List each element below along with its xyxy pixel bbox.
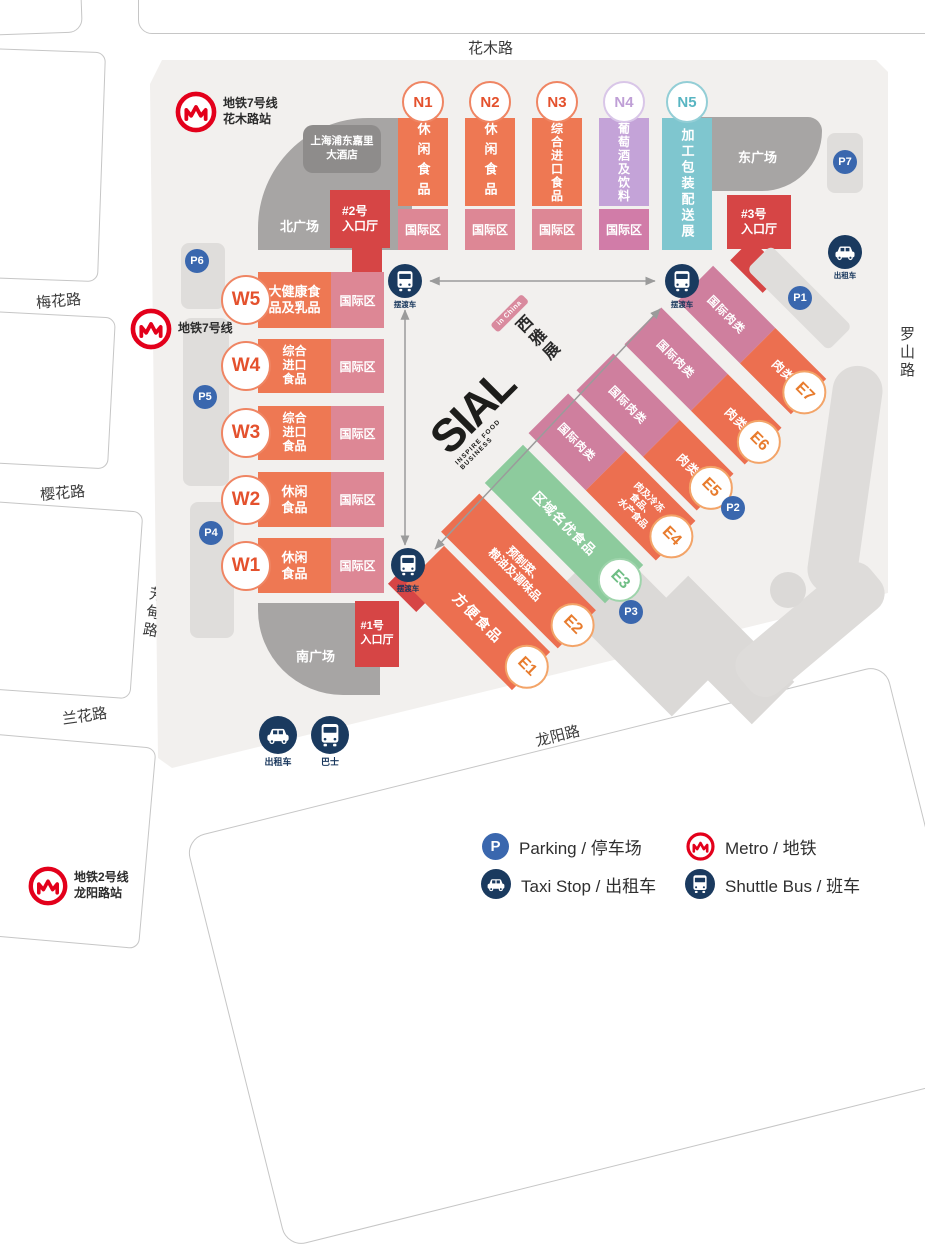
city-block-top (138, 0, 925, 34)
city-block-left-1 (0, 48, 106, 282)
hall-n5-category: 加工包装配送展 (662, 118, 712, 250)
hall-n2-badge: N2 (469, 81, 511, 123)
hall-w2-zone: 国际区 (331, 472, 384, 527)
taxi-icon (259, 716, 297, 754)
taxi-icon (828, 235, 862, 269)
metro-icon (175, 91, 217, 133)
legend-parking-label: Parking / 停车场 (519, 834, 642, 859)
hall-n2: N2 休闲食品 国际区 (465, 118, 515, 250)
hall-w1-badge: W1 (221, 541, 271, 591)
parking-legend-icon: P (482, 833, 509, 860)
shuttle-bus-icon (391, 548, 425, 582)
metro-icon (686, 832, 715, 861)
taxi-stop-label: 出租车 (834, 270, 857, 281)
hall-n1-zone: 国际区 (398, 209, 448, 250)
parking-badge-p4: P4 (199, 521, 223, 545)
hall-w3-badge: W3 (221, 408, 271, 458)
road-label-meihua: 梅花路 (35, 288, 82, 313)
metro-icon (28, 866, 68, 906)
sial-logo-chinese: 西雅展 (508, 312, 565, 369)
entrance-1: #1号 入口厅 (355, 601, 399, 667)
metro-station-line2-longyang: 地铁2号线龙阳路站 (28, 866, 129, 906)
bus-stop-label: 巴士 (321, 755, 339, 768)
bus-icon (311, 716, 349, 754)
hall-w5-zone: 国际区 (331, 272, 384, 328)
metro-station-label: 龙阳路站 (74, 886, 122, 900)
taxi-icon (481, 869, 511, 899)
metro-station-label: 花木路站 (223, 112, 271, 126)
shuttle-stop: 摆渡车 (388, 264, 422, 310)
hall-n1: N1 休闲食品 国际区 (398, 118, 448, 250)
shuttle-stop: 摆渡车 (665, 264, 699, 310)
road-label-yinghua: 樱花路 (39, 480, 86, 505)
hall-w3-zone: 国际区 (331, 406, 384, 460)
hall-n1-category: 休闲食品 (398, 118, 448, 206)
legend-taxi-label: Taxi Stop / 出租车 (521, 872, 656, 897)
shuttle-stop-label: 摆渡车 (671, 299, 694, 310)
legend-shuttle-label: Shuttle Bus / 班车 (725, 872, 860, 897)
shuttle-stop-label: 摆渡车 (397, 583, 420, 594)
hall-n4: N4 葡萄酒及饮料 国际区 (599, 118, 649, 250)
hall-n3-category: 综合进口食品 (532, 118, 582, 206)
legend-metro: Metro / 地铁 (686, 832, 817, 861)
road-label-luoshan: 罗山路 (896, 326, 917, 380)
hall-w1-zone: 国际区 (331, 538, 384, 593)
taxi-stop-label: 出租车 (264, 755, 291, 768)
parking-badge-p5: P5 (193, 385, 217, 409)
metro-icon (130, 308, 172, 350)
metro-station-line7-huamu: 地铁7号线花木路站 (175, 91, 278, 133)
parking-badge-p2: P2 (721, 496, 745, 520)
taxi-stop: 出租车 (828, 235, 862, 281)
legend-taxi: Taxi Stop / 出租车 (481, 869, 656, 899)
shuttle-stop: 摆渡车 (391, 548, 425, 594)
venue-map: { "roads":{"huamu":"花木路","meihua":"梅花路",… (0, 0, 925, 925)
metro-line-label: 地铁2号线 (74, 870, 129, 884)
hall-n2-zone: 国际区 (465, 209, 515, 250)
city-block-left-3 (0, 501, 143, 699)
hall-n4-category: 葡萄酒及饮料 (599, 118, 649, 206)
metro-line-label: 地铁7号线 (223, 96, 278, 110)
north-plaza-label: 北广场 (280, 216, 319, 235)
hall-n5-badge: N5 (666, 81, 708, 123)
city-block-left-2 (0, 311, 116, 470)
south-plaza-label: 南广场 (296, 646, 335, 665)
metro-station-line7: 地铁7号线 (130, 308, 233, 350)
road-label-lanhua: 兰花路 (61, 702, 109, 729)
legend-parking: P Parking / 停车场 (482, 833, 642, 860)
shuttle-stop-label: 摆渡车 (394, 299, 417, 310)
entrance-3: #3号 入口厅 (727, 195, 791, 249)
hotel-badge: 上海浦东嘉里 大酒店 (303, 125, 381, 173)
hall-w2-badge: W2 (221, 475, 271, 525)
hall-n4-zone: 国际区 (599, 209, 649, 250)
entrance-2: #2号 入口厅 (330, 190, 390, 248)
road-label-huamu: 花木路 (468, 37, 513, 58)
hall-w4-zone: 国际区 (331, 339, 384, 393)
hall-n2-category: 休闲食品 (465, 118, 515, 206)
hall-n5: N5 加工包装配送展 (662, 118, 712, 250)
hall-n4-badge: N4 (603, 81, 645, 123)
legend-metro-label: Metro / 地铁 (725, 834, 817, 859)
bus-stop: 巴士 (311, 716, 349, 768)
metro-line-label: 地铁7号线 (178, 321, 233, 337)
hall-w3: W3 综合 进口 食品 国际区 (258, 406, 384, 460)
hall-n3-badge: N3 (536, 81, 578, 123)
hall-w4: W4 综合 进口 食品 国际区 (258, 339, 384, 393)
taxi-stop: 出租车 (259, 716, 297, 768)
driveway-area (770, 572, 806, 608)
east-plaza-label: 东广场 (738, 147, 777, 166)
shuttle-bus-icon (665, 264, 699, 298)
city-block-top-left (0, 0, 83, 36)
hall-w1: W1 休闲 食品 国际区 (258, 538, 384, 593)
parking-badge-p1: P1 (788, 286, 812, 310)
shuttle-bus-icon (685, 869, 715, 899)
parking-badge-p6: P6 (185, 249, 209, 273)
city-block-bottom-left (0, 733, 156, 949)
hall-w5: W5 大健康食 品及乳品 国际区 (258, 272, 384, 328)
parking-badge-p3: P3 (619, 600, 643, 624)
legend-shuttle: Shuttle Bus / 班车 (685, 869, 860, 899)
hall-n1-badge: N1 (402, 81, 444, 123)
parking-badge-p7: P7 (833, 150, 857, 174)
hall-n3-zone: 国际区 (532, 209, 582, 250)
hall-w2: W2 休闲 食品 国际区 (258, 472, 384, 527)
shuttle-bus-icon (388, 264, 422, 298)
hall-n3: N3 综合进口食品 国际区 (532, 118, 582, 250)
